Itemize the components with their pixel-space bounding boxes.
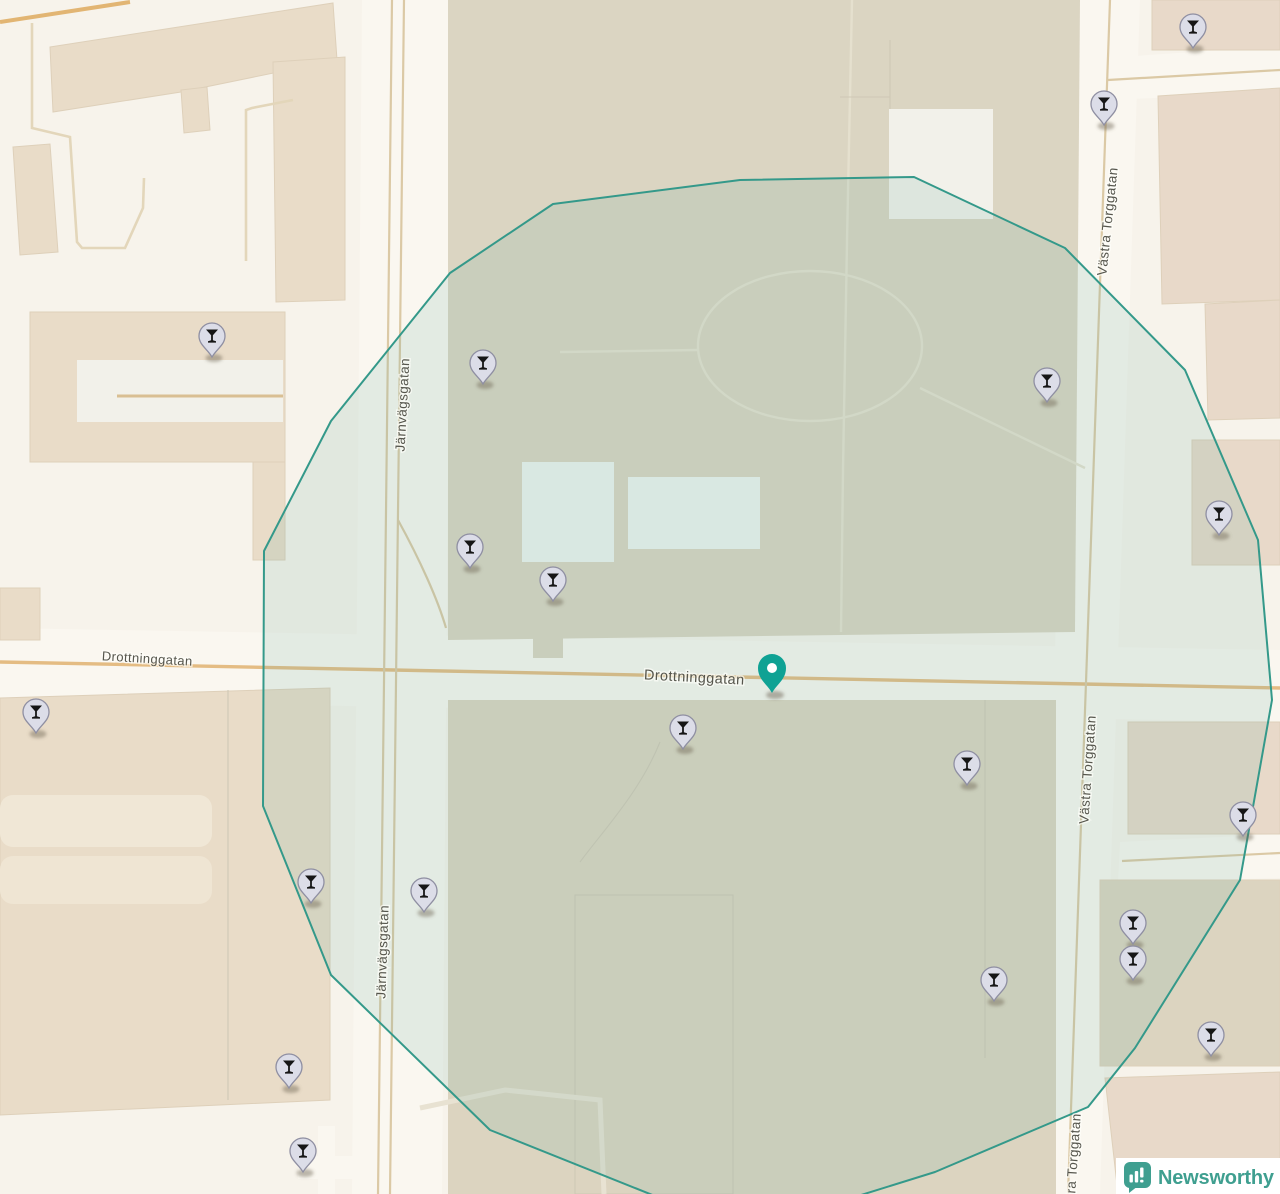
attribution-text: Newsworthy — [1158, 1167, 1275, 1189]
map-stage: DrottninggatanDrottninggatanJärnvägsgata… — [0, 0, 1280, 1194]
bar-chart-icon — [1130, 1175, 1133, 1183]
exclamation-icon — [1140, 1168, 1143, 1178]
map-canvas: DrottninggatanDrottninggatanJärnvägsgata… — [0, 0, 1280, 1194]
newsworthy-logo[interactable]: Newsworthy — [1116, 1158, 1280, 1194]
